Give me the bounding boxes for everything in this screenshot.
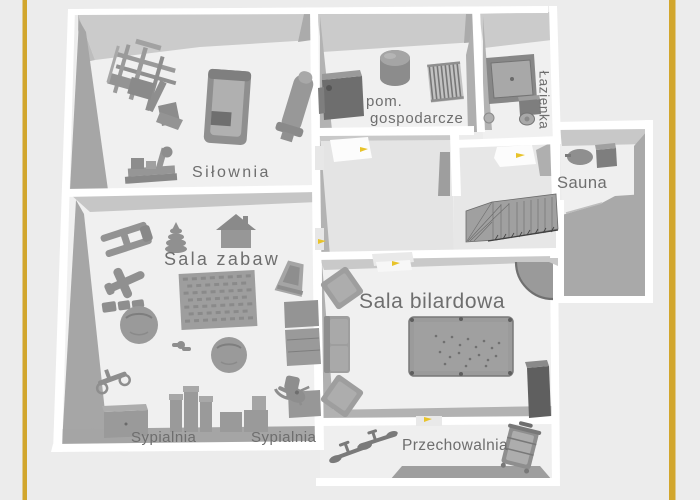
svg-text:pom.: pom. [366,93,403,110]
svg-text:Sauna: Sauna [557,174,608,192]
svg-text:Łazienka: Łazienka [536,71,551,130]
svg-text:Sala bilardowa: Sala bilardowa [359,290,505,313]
svg-text:gospodarcze: gospodarcze [370,110,464,127]
svg-text:Sala zabaw: Sala zabaw [164,249,280,269]
svg-text:Siłownia: Siłownia [192,164,271,181]
svg-text:Sypialnia: Sypialnia [131,429,197,446]
svg-text:Przechowalnia: Przechowalnia [402,437,508,454]
svg-text:Sypialnia: Sypialnia [251,429,317,446]
